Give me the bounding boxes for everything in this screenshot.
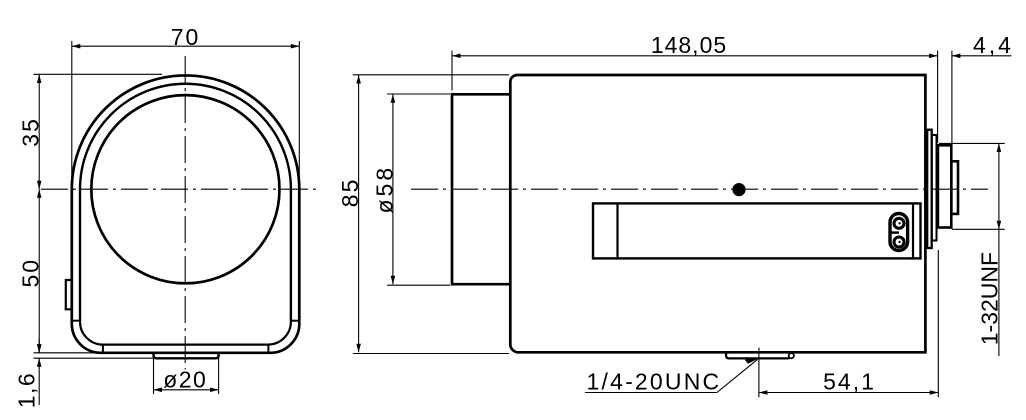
svg-text:4,4: 4,4	[973, 32, 1014, 58]
svg-text:148,05: 148,05	[651, 32, 727, 58]
svg-text:54,1: 54,1	[823, 369, 876, 395]
svg-text:85: 85	[337, 178, 363, 208]
svg-text:1-32UNF: 1-32UNF	[977, 252, 1003, 345]
svg-text:35: 35	[18, 117, 44, 147]
svg-text:ø58: ø58	[371, 165, 397, 214]
svg-text:1,6: 1,6	[14, 372, 40, 408]
svg-text:1/4-20UNC: 1/4-20UNC	[587, 369, 722, 395]
svg-text:70: 70	[171, 24, 201, 50]
svg-text:50: 50	[18, 258, 44, 288]
svg-text:ø20: ø20	[163, 367, 207, 393]
